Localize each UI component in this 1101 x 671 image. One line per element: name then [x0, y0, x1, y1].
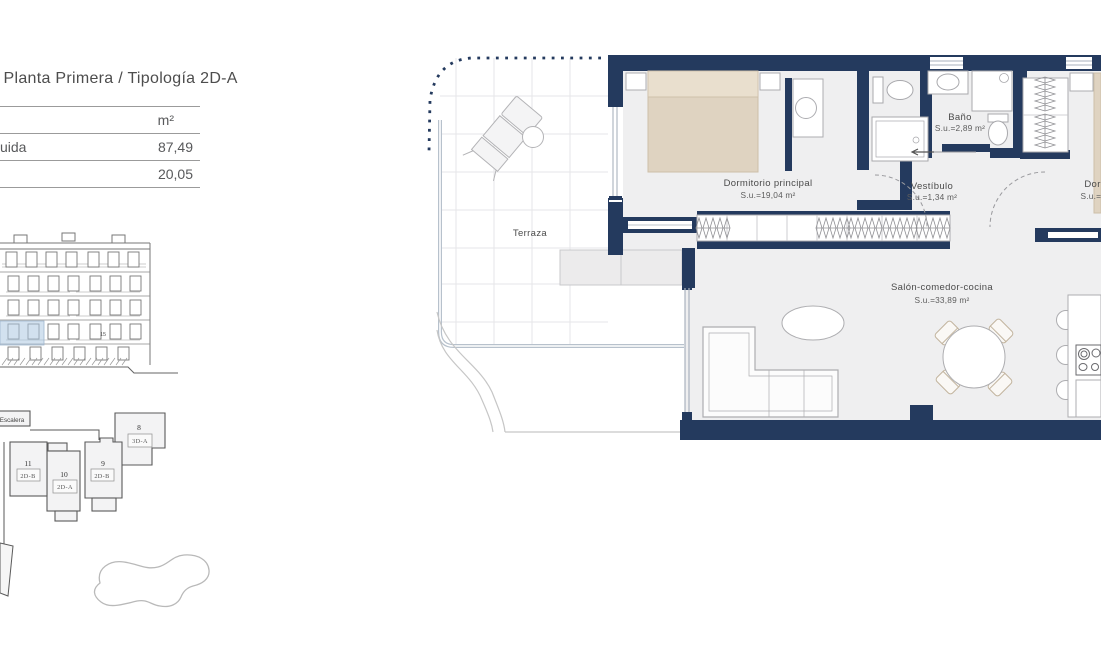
wardrobe — [696, 215, 950, 241]
terrace-step — [560, 250, 682, 285]
shower-drain — [913, 137, 919, 143]
cooktop-icon — [1076, 345, 1101, 375]
bed-pillows — [648, 71, 758, 97]
closet — [1023, 77, 1068, 152]
washbasin-icon — [937, 74, 959, 90]
wardrobe-top-edge — [697, 211, 950, 215]
shower-head — [1000, 74, 1009, 83]
room-label-dormitorio-2: Dormitorio — [1084, 179, 1101, 190]
wall-ensuite-left — [857, 71, 869, 170]
toilet-icon — [873, 77, 883, 103]
table-row: uida 87,49 — [0, 133, 200, 160]
apartment-floor-plan: Terraza Dormitorio principal S.u.=19,04 … — [420, 40, 1101, 460]
area-unit-header: m² — [88, 112, 200, 128]
wardrobe-bottom-band — [697, 241, 950, 249]
row-label: uida — [0, 139, 107, 155]
site-connector — [30, 430, 99, 440]
unit-number: 11 — [24, 459, 31, 468]
building-elevation: 15 — [0, 213, 180, 378]
elevation-unit-tag: 15 — [100, 332, 106, 338]
room-area-bano: S.u.=2,89 m² — [935, 123, 985, 133]
wall-bed-partition — [785, 78, 792, 171]
nightstand — [1070, 73, 1093, 91]
room-label-vestibulo: Vestíbulo — [911, 181, 953, 192]
garden-path-lines — [437, 312, 685, 432]
unit-number: 10 — [60, 470, 68, 479]
coffee-table — [782, 306, 844, 340]
highlighted-unit — [0, 321, 44, 345]
site-plan: Escalera 8 3D-A 9 2D-B 10 2D-A 11 2D-B — [0, 398, 230, 648]
unit-number: 9 — [101, 459, 105, 468]
room-label-dormitorio-principal: Dormitorio principal — [724, 178, 813, 189]
toilet-icon — [989, 121, 1008, 145]
kitchen-cabinet — [1076, 380, 1101, 417]
terrace-furniture — [463, 94, 545, 181]
wall-top — [608, 55, 1101, 71]
roof-box — [112, 235, 125, 243]
room-label-terraza: Terraza — [513, 228, 547, 239]
wall-bottom-stub — [910, 405, 933, 420]
ground-line — [0, 367, 178, 373]
unit-10-lower-tab — [55, 511, 77, 521]
unit-type: 2D-B — [94, 473, 109, 480]
room-area-salon: S.u.=33,89 m² — [915, 295, 970, 305]
row-value: 87,49 — [107, 139, 200, 155]
wall-left-lower — [608, 198, 623, 255]
table-row: 20,05 — [0, 160, 200, 188]
room-label-bano: Baño — [948, 112, 972, 123]
nightstand — [626, 73, 646, 90]
floorplan-page: / Planta Primera / Tipología 2D-A m² uid… — [0, 0, 1101, 671]
area-table: m² uida 87,49 20,05 — [0, 106, 200, 188]
sliding-door-leaf — [942, 144, 990, 152]
desk-chair — [796, 98, 817, 119]
stairs-label: Escalera — [0, 417, 25, 424]
wall-bottom — [680, 420, 1101, 440]
unit-type: 2D-B — [20, 473, 35, 480]
room-area-dormitorio-2: S.u.=10,75 m² — [1081, 191, 1101, 201]
roof-box — [62, 233, 75, 241]
site-structure — [0, 543, 13, 596]
pool-shape — [94, 555, 209, 607]
kitchen — [1057, 295, 1101, 417]
unit-9-outline — [85, 438, 122, 498]
slider-cap-bottom — [682, 412, 692, 420]
unit-9-lower-tab — [92, 498, 116, 511]
slider-cap-top — [682, 282, 692, 290]
dining-table — [943, 326, 1005, 388]
toilet-icon — [887, 81, 913, 100]
side-table-icon — [523, 127, 544, 148]
nightstand — [760, 73, 780, 90]
area-table-header: m² — [0, 106, 200, 133]
row-value: 20,05 — [107, 166, 200, 182]
ground-hatch — [2, 358, 127, 365]
roof-box — [14, 235, 27, 243]
wall-left-upper — [608, 55, 623, 107]
unit-number: 8 — [137, 423, 141, 432]
unit-10-tab — [48, 443, 67, 451]
terrace-tile-grid — [440, 58, 608, 346]
unit-type: 2D-A — [57, 484, 73, 491]
page-title: / Planta Primera / Tipología 2D-A — [0, 70, 238, 88]
wall-ensuite-south — [857, 200, 912, 210]
unit-type: 3D-A — [132, 438, 148, 445]
room-area-vestibulo: S.u.=1,34 m² — [907, 192, 957, 202]
room-area-dormitorio-principal: S.u.=19,04 m² — [741, 190, 796, 200]
room-label-salon: Salón-comedor-cocina — [891, 282, 993, 293]
